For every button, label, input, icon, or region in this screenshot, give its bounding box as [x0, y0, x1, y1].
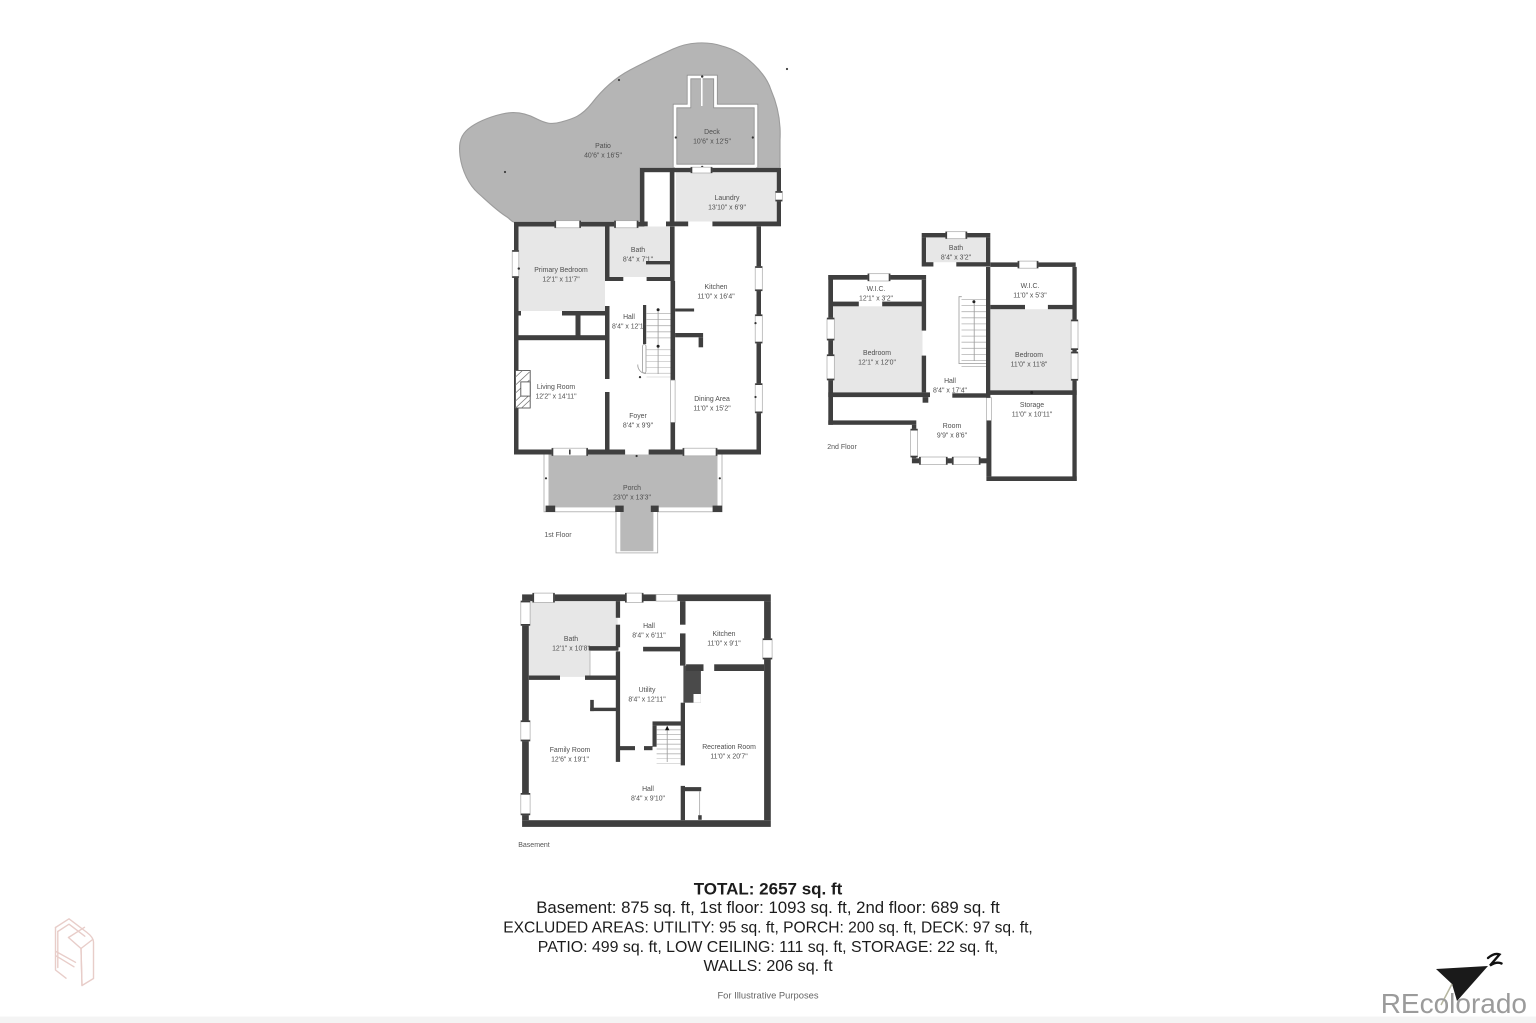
svg-text:12'1" x 11'7": 12'1" x 11'7" — [542, 277, 580, 284]
svg-text:10'6" x 12'5": 10'6" x 12'5" — [693, 139, 731, 146]
svg-text:11'0" x 10'11": 11'0" x 10'11" — [1012, 412, 1053, 419]
svg-text:8'4" x 3'2": 8'4" x 3'2" — [941, 255, 972, 262]
svg-text:40'6" x 16'5": 40'6" x 16'5" — [584, 153, 622, 160]
svg-text:12'6" x 19'1": 12'6" x 19'1" — [551, 757, 589, 764]
svg-text:8'4" x 12'11": 8'4" x 12'11" — [628, 697, 666, 704]
svg-text:Recreation Room: Recreation Room — [702, 744, 756, 751]
svg-text:Laundry: Laundry — [715, 195, 740, 202]
svg-text:Hall: Hall — [643, 623, 655, 630]
svg-text:PATIO: 499 sq. ft, LOW CEILING: PATIO: 499 sq. ft, LOW CEILING: 111 sq. … — [538, 939, 998, 956]
svg-text:Bath: Bath — [631, 247, 645, 254]
svg-text:12'2" x 14'11": 12'2" x 14'11" — [535, 394, 577, 401]
svg-text:Hall: Hall — [623, 314, 635, 321]
svg-text:12'1" x 12'0": 12'1" x 12'0" — [858, 360, 896, 367]
svg-text:12'1" x 3'2": 12'1" x 3'2" — [859, 296, 894, 303]
svg-text:Porch: Porch — [623, 485, 641, 492]
svg-text:1st Floor: 1st Floor — [544, 532, 572, 539]
svg-text:REcolorado: REcolorado — [1381, 988, 1527, 1019]
svg-text:11'0" x 20'7": 11'0" x 20'7" — [710, 754, 748, 761]
svg-text:Dining Area: Dining Area — [694, 396, 730, 403]
svg-text:Hall: Hall — [944, 378, 956, 385]
svg-text:11'0" x 16'4": 11'0" x 16'4" — [697, 294, 735, 301]
svg-text:Utility: Utility — [639, 687, 656, 694]
svg-text:WALLS: 206 sq. ft: WALLS: 206 sq. ft — [703, 957, 833, 975]
svg-text:11'0" x 15'2": 11'0" x 15'2" — [693, 406, 731, 413]
svg-text:9'9" x 8'6": 9'9" x 8'6" — [937, 433, 968, 440]
svg-text:Living Room: Living Room — [537, 384, 576, 391]
svg-text:8'4" x 9'9": 8'4" x 9'9" — [623, 423, 654, 430]
svg-text:13'10" x 6'9": 13'10" x 6'9" — [708, 205, 746, 212]
svg-text:Kitchen: Kitchen — [713, 631, 736, 638]
svg-text:Primary Bedroom: Primary Bedroom — [534, 267, 588, 274]
svg-text:Bedroom: Bedroom — [1015, 352, 1043, 359]
svg-text:Room: Room — [943, 423, 962, 430]
svg-text:Basement: Basement — [518, 842, 550, 849]
svg-text:12'1" x 10'8": 12'1" x 10'8" — [552, 646, 590, 653]
svg-text:W.I.C.: W.I.C. — [867, 286, 886, 293]
svg-text:W.I.C.: W.I.C. — [1021, 283, 1040, 290]
svg-text:8'4" x 9'10": 8'4" x 9'10" — [631, 796, 666, 803]
svg-text:2nd Floor: 2nd Floor — [827, 444, 857, 451]
svg-text:Patio: Patio — [595, 143, 611, 150]
svg-text:EXCLUDED AREAS: UTILITY: 95 sq: EXCLUDED AREAS: UTILITY: 95 sq. ft, PORC… — [503, 920, 1033, 937]
svg-text:Basement: 875 sq. ft, 1st floo: Basement: 875 sq. ft, 1st floor: 1093 sq… — [536, 898, 1000, 917]
svg-text:11'0" x 9'1": 11'0" x 9'1" — [707, 641, 741, 648]
svg-text:Bedroom: Bedroom — [863, 350, 891, 357]
svg-text:For Illustrative Purposes: For Illustrative Purposes — [717, 990, 818, 1001]
svg-text:Bath: Bath — [949, 245, 963, 252]
svg-text:Kitchen: Kitchen — [705, 284, 728, 291]
svg-text:8'4" x 12'1": 8'4" x 12'1" — [612, 324, 647, 331]
svg-text:8'4" x 6'11": 8'4" x 6'11" — [632, 633, 666, 640]
svg-text:8'4" x 17'4": 8'4" x 17'4" — [933, 388, 968, 395]
svg-text:11'0" x 11'8": 11'0" x 11'8" — [1011, 362, 1048, 369]
svg-text:11'0" x 5'3": 11'0" x 5'3" — [1013, 293, 1047, 300]
svg-text:Family Room: Family Room — [550, 747, 591, 754]
svg-text:Deck: Deck — [704, 129, 720, 136]
svg-text:Hall: Hall — [642, 786, 654, 793]
svg-text:Storage: Storage — [1020, 402, 1044, 409]
svg-text:23'0" x 13'3": 23'0" x 13'3" — [613, 495, 651, 502]
svg-text:Foyer: Foyer — [629, 413, 647, 420]
svg-text:Bath: Bath — [564, 636, 578, 643]
svg-text:TOTAL: 2657 sq. ft: TOTAL: 2657 sq. ft — [694, 880, 843, 899]
